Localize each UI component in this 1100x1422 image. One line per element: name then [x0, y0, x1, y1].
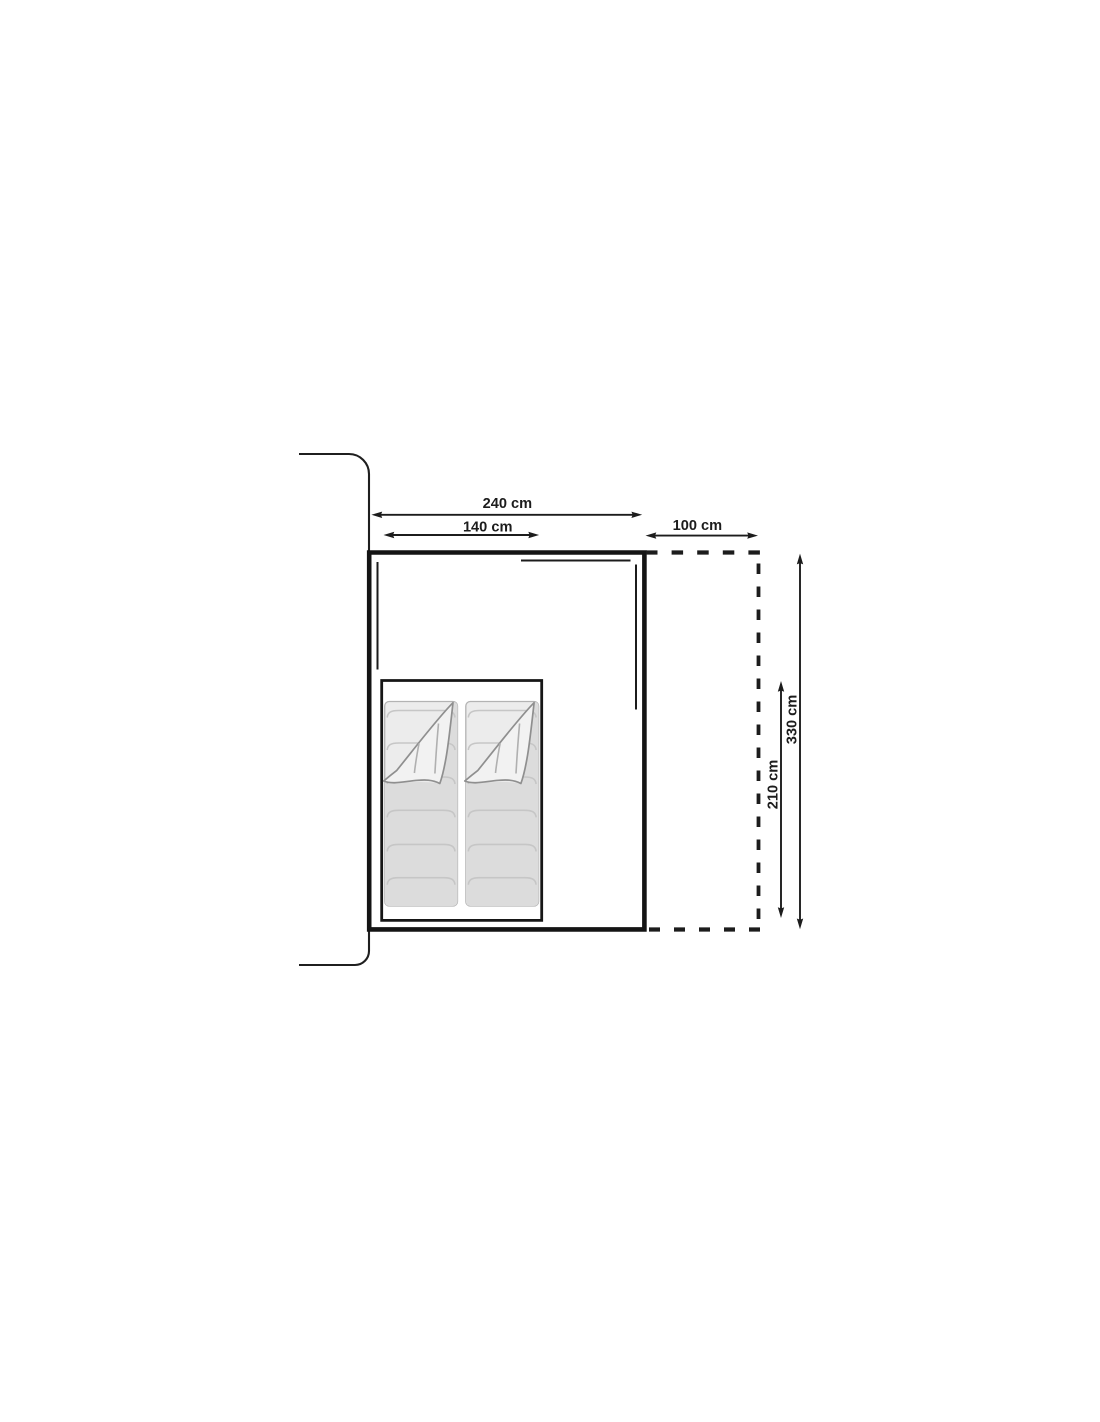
svg-text:240 cm: 240 cm — [483, 496, 533, 512]
svg-text:210 cm: 210 cm — [766, 760, 782, 810]
svg-text:330 cm: 330 cm — [785, 695, 801, 745]
svg-text:100 cm: 100 cm — [673, 518, 723, 534]
svg-text:140 cm: 140 cm — [463, 519, 513, 535]
